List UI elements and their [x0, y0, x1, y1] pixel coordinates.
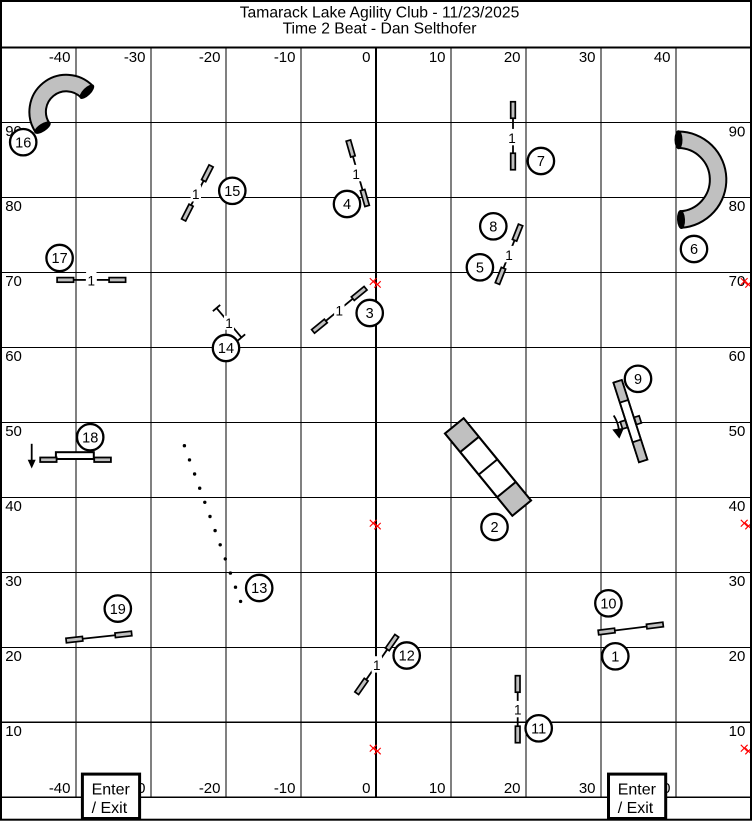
svg-text:30: 30	[579, 780, 596, 797]
svg-text:1: 1	[514, 703, 522, 718]
svg-text:60: 60	[729, 348, 746, 365]
svg-text:/ Exit: / Exit	[92, 800, 128, 817]
svg-text:30: 30	[729, 573, 746, 590]
svg-text:Tamarack Lake Agility Club - 1: Tamarack Lake Agility Club - 11/23/2025	[240, 5, 520, 22]
svg-text:-10: -10	[274, 49, 296, 66]
svg-text:1: 1	[192, 187, 200, 202]
svg-text:1: 1	[336, 303, 344, 318]
svg-text:10: 10	[729, 723, 746, 740]
svg-text:10: 10	[429, 49, 446, 66]
svg-text:10: 10	[600, 597, 616, 613]
svg-text:30: 30	[5, 573, 22, 590]
svg-text:15: 15	[224, 184, 240, 200]
svg-text:13: 13	[251, 581, 267, 597]
svg-text:90: 90	[729, 123, 746, 140]
svg-text:20: 20	[729, 648, 746, 665]
svg-text:60: 60	[5, 348, 22, 365]
svg-text:1: 1	[373, 658, 381, 673]
svg-text:19: 19	[110, 602, 126, 618]
svg-text:40: 40	[729, 498, 746, 515]
svg-text:20: 20	[5, 648, 22, 665]
svg-text:12: 12	[399, 649, 415, 665]
svg-text:1: 1	[611, 650, 619, 666]
svg-text:40: 40	[5, 498, 22, 515]
svg-text:70: 70	[5, 273, 22, 290]
svg-text:0: 0	[362, 780, 370, 797]
svg-text:50: 50	[729, 423, 746, 440]
svg-text:1: 1	[88, 273, 96, 288]
svg-text:16: 16	[15, 135, 31, 151]
svg-text:1: 1	[508, 131, 516, 146]
svg-text:30: 30	[579, 49, 596, 66]
svg-text:3: 3	[366, 306, 374, 322]
svg-text:50: 50	[5, 423, 22, 440]
svg-text:Enter: Enter	[618, 782, 657, 799]
svg-text:-20: -20	[199, 49, 221, 66]
svg-text:8: 8	[489, 220, 497, 236]
svg-text:80: 80	[729, 198, 746, 215]
svg-text:18: 18	[82, 430, 98, 446]
svg-text:0: 0	[362, 49, 370, 66]
svg-text:-30: -30	[124, 49, 146, 66]
svg-text:80: 80	[5, 198, 22, 215]
svg-text:40: 40	[654, 49, 671, 66]
svg-text:70: 70	[729, 273, 746, 290]
svg-text:17: 17	[52, 251, 68, 267]
svg-text:Enter: Enter	[92, 782, 131, 799]
svg-text:1: 1	[225, 316, 233, 331]
svg-text:9: 9	[634, 372, 642, 388]
svg-text:6: 6	[690, 242, 698, 258]
svg-text:5: 5	[476, 261, 484, 277]
svg-text:Time 2 Beat - Dan Selthofer: Time 2 Beat - Dan Selthofer	[283, 21, 477, 38]
svg-text:20: 20	[504, 49, 521, 66]
svg-text:1: 1	[352, 167, 360, 182]
svg-text:11: 11	[531, 722, 546, 738]
svg-text:/ Exit: / Exit	[618, 800, 654, 817]
svg-text:-10: -10	[274, 780, 296, 797]
svg-text:4: 4	[343, 197, 351, 213]
svg-text:10: 10	[429, 780, 446, 797]
svg-text:7: 7	[537, 154, 545, 170]
svg-text:10: 10	[5, 723, 22, 740]
svg-text:20: 20	[504, 780, 521, 797]
svg-text:-20: -20	[199, 780, 221, 797]
svg-text:-40: -40	[49, 49, 71, 66]
svg-text:14: 14	[218, 341, 234, 357]
svg-text:2: 2	[490, 520, 498, 536]
svg-text:1: 1	[505, 248, 513, 263]
svg-text:-40: -40	[49, 780, 71, 797]
